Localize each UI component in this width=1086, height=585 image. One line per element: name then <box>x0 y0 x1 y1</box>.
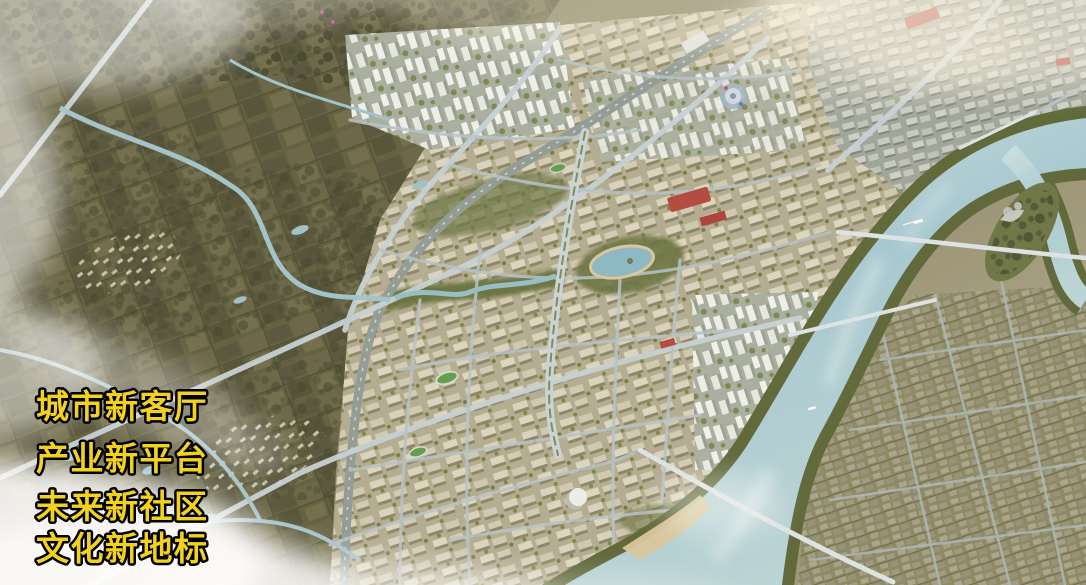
aerial-masterplan-rendering: 城市新客厅 产业新平台 未来新社区 文化新地标 <box>0 0 1086 585</box>
slogan-line-1: 城市新客厅 <box>36 387 209 426</box>
slogan-line-3: 未来新社区 <box>36 487 209 526</box>
slogan-line-2: 产业新平台 <box>36 439 209 478</box>
scene-canvas: 城市新客厅 产业新平台 未来新社区 文化新地标 <box>0 0 1086 585</box>
slogan-line-4: 文化新地标 <box>36 529 209 568</box>
slogan-overlay: 城市新客厅 产业新平台 未来新社区 文化新地标 <box>36 387 209 568</box>
